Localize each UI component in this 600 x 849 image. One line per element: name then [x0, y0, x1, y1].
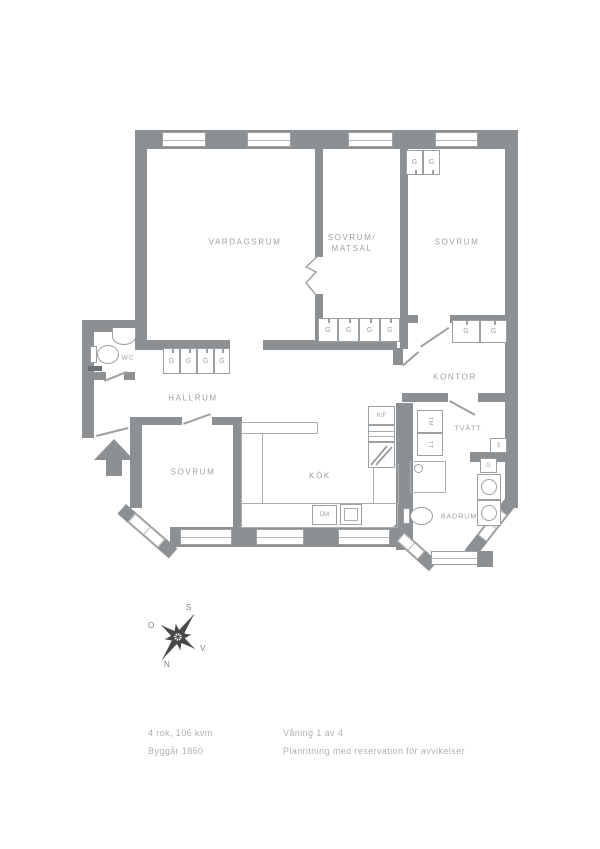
door-entrance [96, 427, 128, 436]
fridge-shelves [368, 425, 395, 442]
wardrobe-label: G [203, 358, 208, 365]
wardrobe-cabinet: G [318, 318, 338, 342]
disclaimer-text: Planritning med reservation för avvikels… [283, 746, 465, 756]
sink-bowl-icon [481, 505, 497, 521]
arrow-head [94, 439, 134, 460]
door-hall-small [402, 351, 419, 366]
room-label-wc: WC [122, 353, 135, 364]
floor-number-text: Våning 1 av 4 [283, 728, 343, 738]
washing-machine: TM [417, 410, 443, 433]
room-label-kitchen: KÖK [309, 471, 331, 482]
shelf-line [369, 436, 394, 437]
wall [478, 393, 517, 402]
wardrobe-label: G [325, 327, 330, 334]
room-label-bedroom-bottom: SOVRUM [171, 467, 216, 478]
room-label-office: KONTOR [433, 372, 477, 383]
entrance-arrow-icon [94, 439, 134, 476]
room-label-bed-dining-line1: SOVRUM/ [328, 233, 377, 242]
apartment-size-text: 4 rok, 106 kvm [148, 728, 213, 738]
wardrobe-label: G [367, 327, 372, 334]
room-label-hall: HALLRUM [168, 393, 217, 404]
compass-rose: S O V N [140, 597, 220, 677]
wardrobe-label: G [387, 327, 392, 334]
wardrobe-cabinet: G [406, 150, 423, 175]
door-bedroom-bottom [183, 413, 211, 424]
shower-drain-icon [414, 464, 423, 473]
cabinet-label: S [496, 443, 500, 449]
window [128, 513, 165, 548]
sink-basin [344, 508, 358, 521]
door-office-laundry [449, 400, 475, 415]
fridge-freezer: K/F [368, 406, 395, 425]
wardrobe-label: G [346, 327, 351, 334]
bath-sink [477, 500, 501, 526]
wall [137, 417, 182, 425]
wc-toilet-tank [90, 346, 97, 363]
build-year-text: Byggår 1850 [148, 746, 203, 756]
door-office-hall [420, 327, 449, 347]
wardrobe-cabinet: G [423, 150, 440, 175]
wall [124, 372, 135, 380]
wardrobe-cabinet: G [180, 348, 197, 374]
wardrobe-label: G [186, 358, 191, 365]
wardrobe-cabinet: G [480, 320, 507, 343]
room-label-bathroom: BADRUM [441, 512, 477, 523]
bath-toilet-bowl [410, 507, 433, 525]
window [435, 132, 478, 147]
room-label-bed-dining: SOVRUM/ MATSAL [328, 232, 377, 254]
wardrobe-label: G [412, 159, 417, 166]
wc-radiator [88, 366, 102, 371]
window [348, 132, 393, 147]
room-label-bedroom-right: SOVRUM [435, 237, 480, 248]
stove-icon [368, 442, 395, 468]
wall [135, 130, 147, 349]
wardrobe-label: G [463, 328, 468, 335]
room-label-laundry: TVÄTT [454, 424, 481, 435]
window [247, 132, 291, 147]
window [180, 529, 232, 545]
fridge-freezer-label: K/F [377, 413, 386, 419]
wall [400, 315, 418, 323]
wall [393, 348, 403, 365]
wardrobe-cabinet: G [359, 318, 380, 342]
floorplan-page: G G G G G G G G G G G G S G DM K/F TM TT [0, 0, 600, 849]
wardrobe-cabinet: G [214, 348, 230, 374]
compass-west-label: V [200, 644, 206, 653]
wardrobe-cabinet: G [380, 318, 400, 342]
wc-toilet-bowl [97, 345, 119, 364]
bay-wall [117, 504, 177, 558]
wc-sink [112, 328, 136, 345]
washing-machine-label: TM [427, 417, 433, 426]
wall [477, 551, 493, 567]
sink-bowl-icon [481, 479, 497, 495]
window [256, 529, 304, 545]
wardrobe-label: G [491, 328, 496, 335]
compass-east-label: O [148, 621, 154, 630]
cabinet: S [490, 438, 507, 453]
wardrobe-label: G [169, 358, 174, 365]
arrow-stem [106, 460, 122, 476]
wardrobe-cabinet: G [338, 318, 359, 342]
room-label-bed-dining-line2: MATSAL [331, 244, 372, 253]
window [431, 551, 478, 565]
wardrobe-label: G [219, 358, 224, 365]
dishwasher-label: DM [320, 512, 329, 518]
wardrobe-cabinet: G [480, 458, 497, 473]
compass-south-label: S [186, 603, 191, 612]
wall [315, 149, 323, 257]
bath-toilet-tank [403, 508, 410, 524]
window [162, 132, 206, 147]
tumble-dryer: TT [417, 433, 443, 456]
wall [402, 393, 448, 402]
stove [368, 442, 395, 468]
dishwasher: DM [312, 505, 337, 525]
bath-sink [477, 474, 501, 500]
wardrobe-cabinet: G [163, 348, 180, 374]
shelf-line [369, 431, 394, 432]
kitchen-counter [241, 433, 263, 504]
kitchen-sink [340, 504, 362, 525]
window [397, 533, 425, 560]
room-label-living: VARDAGSRUM [209, 237, 282, 248]
kitchen-counter [373, 464, 399, 504]
window [338, 529, 390, 545]
wardrobe-label: G [486, 463, 491, 469]
wall [82, 320, 94, 438]
wardrobe-cabinet: G [452, 320, 480, 343]
tumble-dryer-label: TT [427, 441, 433, 449]
double-door-icon [302, 254, 324, 298]
wardrobe-label: G [429, 159, 434, 166]
compass-north-label: N [164, 660, 170, 669]
wardrobe-cabinet: G [197, 348, 214, 374]
